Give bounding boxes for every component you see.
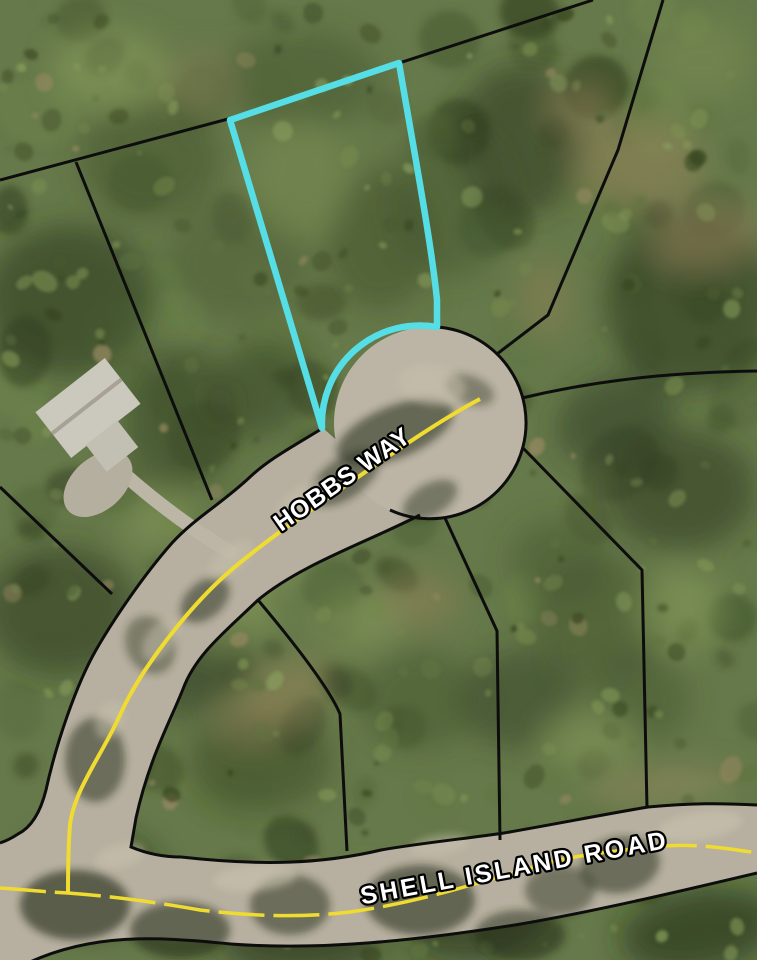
- texture-blob: [390, 120, 510, 280]
- texture-blob: [130, 902, 230, 958]
- texture-blob: [170, 359, 176, 367]
- texture-blob: [540, 710, 640, 770]
- texture-blob: [635, 570, 725, 650]
- texture-blob: [380, 572, 460, 628]
- texture-blob: [360, 650, 480, 750]
- texture-blob: [215, 695, 285, 745]
- texture-blob: [250, 120, 350, 240]
- texture-blob: [20, 870, 130, 940]
- aerial-parcel-map: HOBBS WAY SHELL ISLAND ROAD: [0, 0, 757, 960]
- texture-blob: [50, 30, 170, 110]
- texture-blob: [612, 701, 627, 717]
- map-image: HOBBS WAY SHELL ISLAND ROAD: [0, 0, 757, 960]
- texture-blob: [650, 20, 750, 100]
- texture-blob: [80, 100, 220, 220]
- texture-blob: [159, 423, 168, 432]
